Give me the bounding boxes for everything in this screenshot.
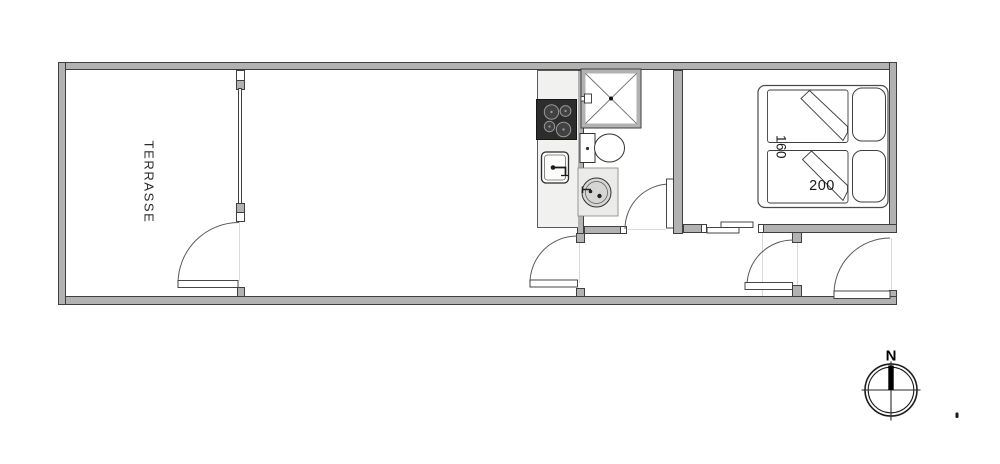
bedroom-sliding-door-panel-a: [707, 228, 739, 234]
bed-length-label: 200: [809, 178, 835, 194]
shower-valve-icon: [581, 97, 585, 102]
shower-head-icon: [585, 94, 592, 103]
living-door-arc: [530, 236, 577, 283]
hall-door-leaf: [745, 283, 793, 290]
bed-width-label: 160: [774, 135, 789, 159]
toilet-icon: [580, 134, 625, 163]
compass-rose: [862, 362, 921, 421]
shower-icon: [581, 69, 641, 128]
washbasin-icon: [578, 168, 618, 216]
north-needle-icon: [888, 366, 893, 391]
plan-fixtures-layer: [0, 0, 1000, 464]
bedroom-sliding-door-panel-b: [721, 222, 753, 228]
kitchen-sink-icon: [542, 152, 569, 183]
bathroom-door-arc: [625, 184, 670, 229]
cooktop-burners-icon: [544, 105, 571, 137]
hall-door-arc: [747, 240, 793, 286]
bathroom-door-leaf: [667, 179, 674, 228]
pillow-top: [853, 88, 886, 141]
entrance-door-arc: [834, 238, 890, 294]
entrance-door-leaf: [834, 291, 890, 299]
pillow-bottom: [853, 151, 886, 203]
terrace-door-leaf: [178, 281, 238, 288]
terrace-door-arc: [178, 223, 239, 284]
small-mark: [956, 413, 959, 419]
terrace-label: TERRASSE: [142, 141, 157, 224]
living-door-leaf: [530, 280, 578, 287]
north-label: N: [886, 348, 897, 365]
floor-plan: TERRASSE 160 200 N: [0, 0, 1000, 464]
